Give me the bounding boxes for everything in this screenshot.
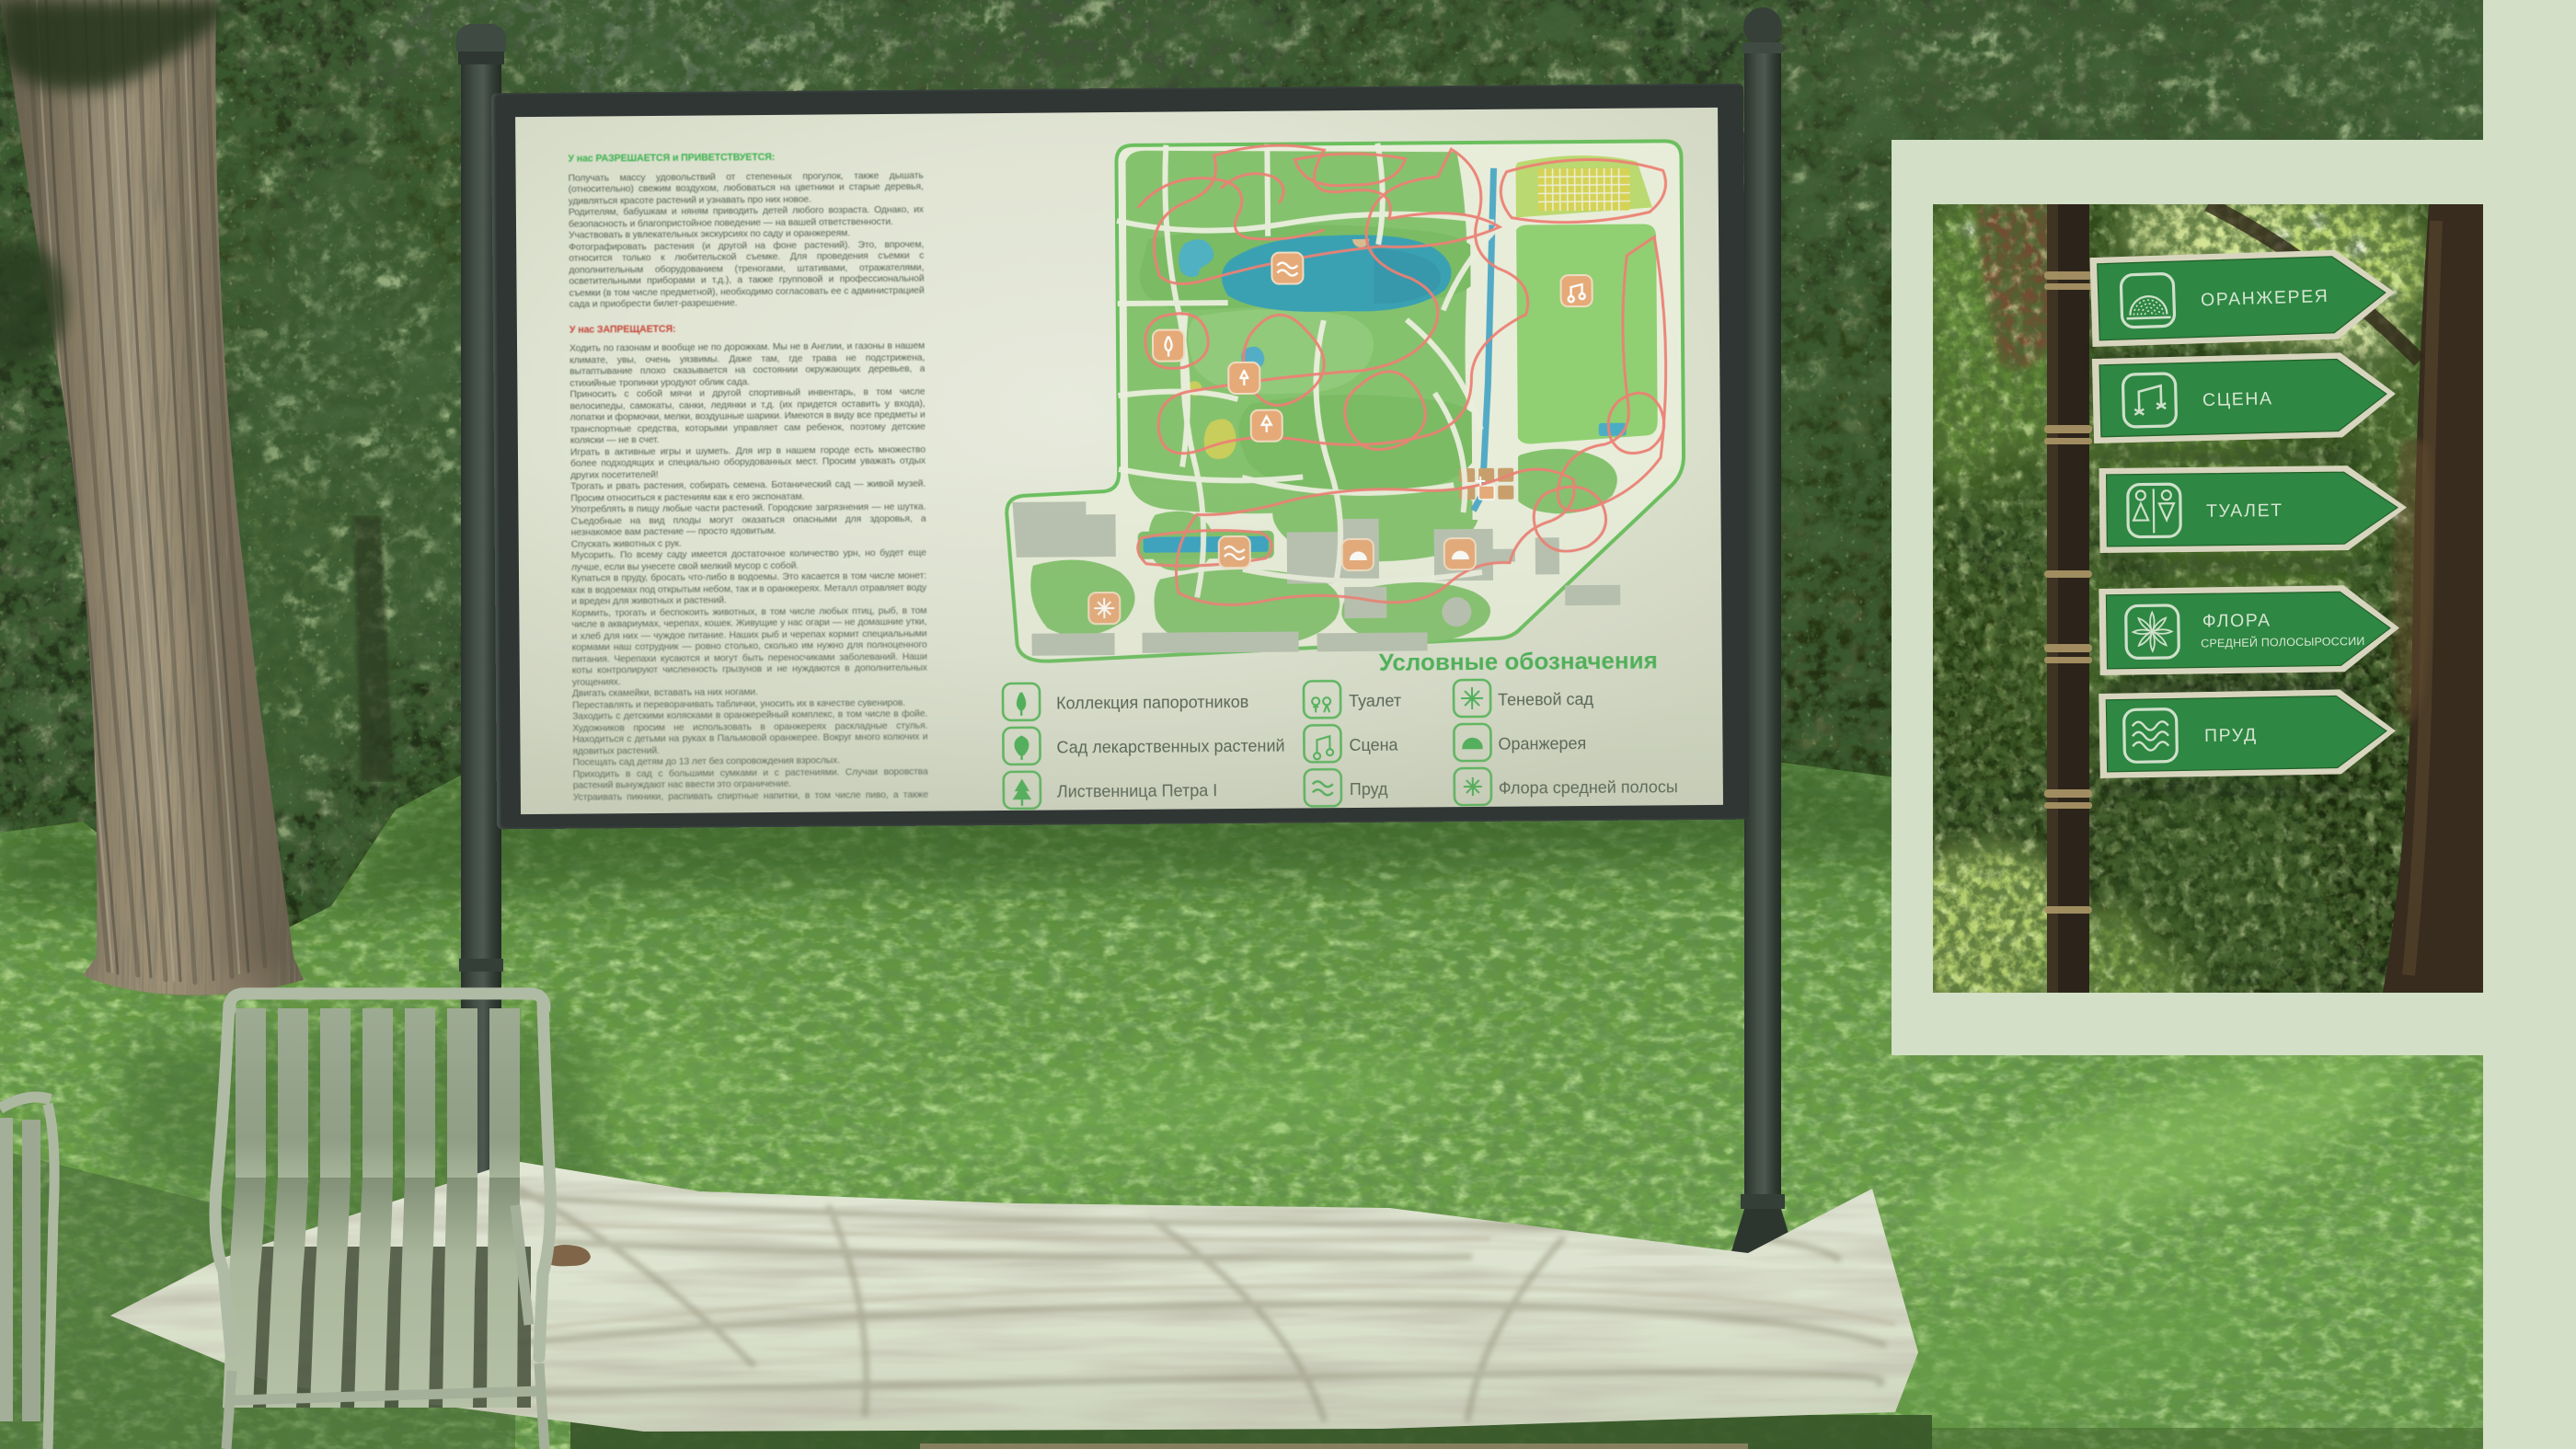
svg-text:ФЛОРА: ФЛОРА	[2202, 610, 2271, 631]
svg-text:ТУАЛЕТ: ТУАЛЕТ	[2206, 500, 2283, 522]
svg-text:СЦЕНА: СЦЕНА	[2202, 388, 2273, 410]
svg-text:ОРАНЖЕРЕЯ: ОРАНЖЕРЕЯ	[2201, 286, 2329, 310]
svg-text:СРЕДНЕЙ ПОЛОСЫРОССИИ: СРЕДНЕЙ ПОЛОСЫРОССИИ	[2201, 634, 2365, 650]
svg-text:ПРУД: ПРУД	[2204, 725, 2258, 746]
